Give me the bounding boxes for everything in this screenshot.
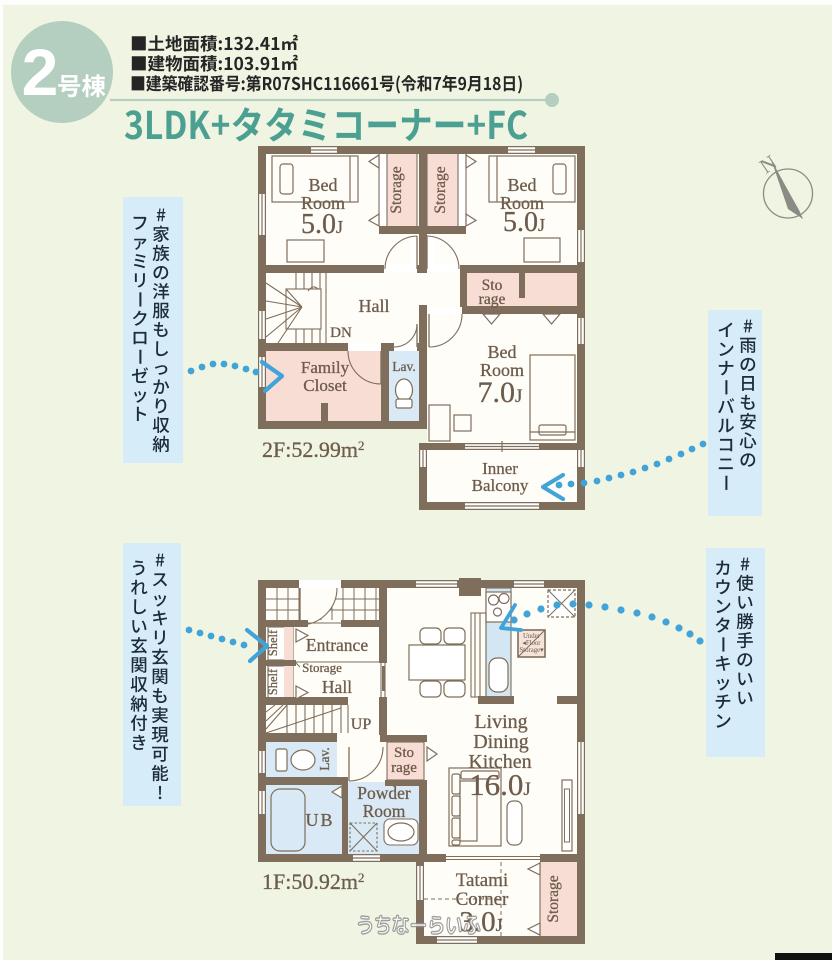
svg-text:Bed: Bed: [488, 342, 517, 362]
svg-text:DN: DN: [330, 325, 352, 341]
svg-text:Bed: Bed: [508, 175, 537, 195]
svg-text:Under: Under: [523, 633, 541, 640]
svg-text:Powder: Powder: [357, 783, 411, 803]
svg-text:UP: UP: [351, 716, 372, 733]
svg-text:Lav.: Lav.: [317, 747, 332, 771]
svg-text:rage: rage: [479, 291, 506, 308]
svg-text:Hall: Hall: [359, 296, 390, 316]
svg-text:Hall: Hall: [322, 677, 352, 697]
svg-text:Storage: Storage: [545, 875, 562, 922]
svg-text:Storage▾: Storage▾: [519, 647, 544, 654]
svg-text:◂Floor: ◂Floor: [522, 640, 541, 647]
svg-text:2: 2: [22, 35, 59, 109]
svg-text:Living: Living: [474, 711, 527, 733]
svg-text:2F:52.99m2: 2F:52.99m2: [262, 437, 364, 462]
svg-text:16.0J: 16.0J: [469, 767, 531, 802]
svg-text:Bed: Bed: [309, 175, 338, 195]
svg-text:Storage: Storage: [302, 660, 342, 675]
svg-text:Storage: Storage: [388, 166, 405, 213]
svg-text:Sto: Sto: [394, 745, 414, 761]
svg-text:Storage: Storage: [432, 166, 449, 213]
svg-text:Family: Family: [301, 358, 350, 377]
svg-text:Lav.: Lav.: [392, 359, 416, 374]
svg-text:Closet: Closet: [303, 376, 347, 395]
svg-text:UB: UB: [305, 810, 334, 830]
svg-text:Entrance: Entrance: [306, 635, 368, 655]
svg-text:Dining: Dining: [473, 731, 529, 753]
svg-text:Shelf: Shelf: [266, 668, 280, 695]
svg-text:Shelf: Shelf: [266, 629, 280, 656]
svg-text:Balcony: Balcony: [472, 476, 529, 495]
svg-text:rage: rage: [391, 760, 417, 776]
svg-text:1F:50.92m2: 1F:50.92m2: [262, 869, 364, 894]
svg-text:Tatami: Tatami: [456, 870, 508, 891]
svg-text:Room: Room: [363, 801, 406, 821]
